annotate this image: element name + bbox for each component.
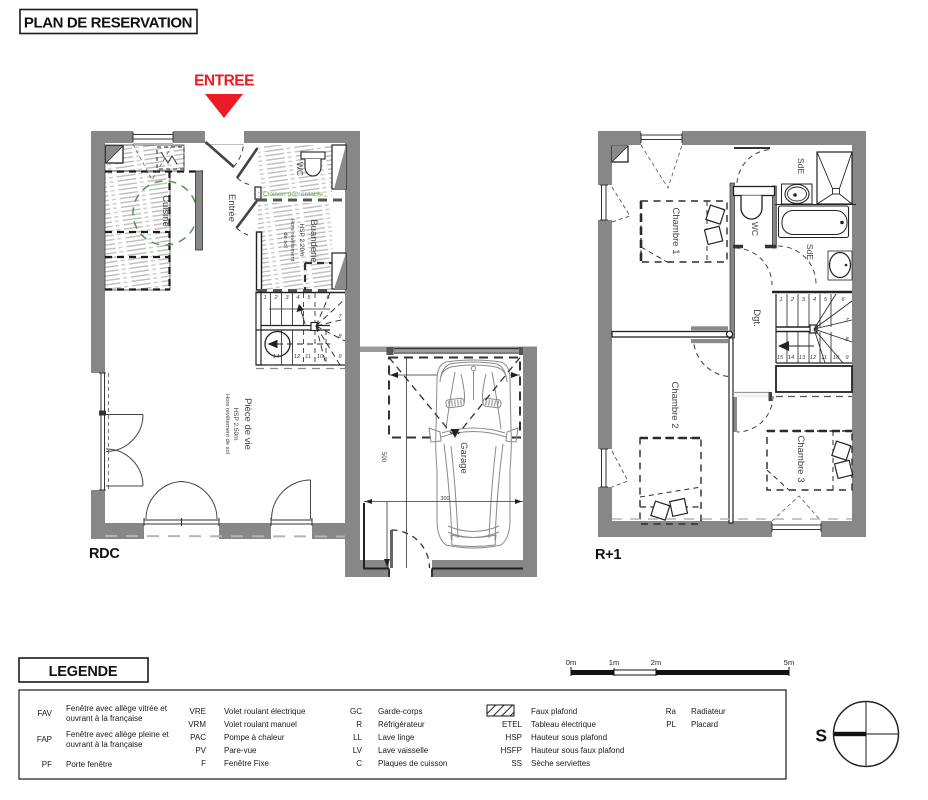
- svg-text:Porte fenêtre: Porte fenêtre: [66, 760, 113, 769]
- svg-text:Chambre 2: Chambre 2: [669, 382, 680, 429]
- svg-text:Cuisine: Cuisine: [160, 195, 171, 227]
- svg-text:ouvrant à la française: ouvrant à la française: [66, 714, 143, 723]
- svg-text:LL: LL: [353, 733, 362, 742]
- svg-text:Tableau électrique: Tableau électrique: [531, 720, 596, 729]
- svg-text:15: 15: [777, 355, 784, 361]
- svg-text:Pièce de vie: Pièce de vie: [242, 398, 253, 450]
- svg-text:Volet roulant électrique: Volet roulant électrique: [224, 707, 306, 716]
- svg-text:HSP 2.50m: HSP 2.50m: [232, 407, 239, 440]
- svg-text:Volet roulant manuel: Volet roulant manuel: [224, 720, 297, 729]
- svg-text:Chambre 1: Chambre 1: [670, 208, 681, 255]
- svg-text:14: 14: [273, 354, 279, 360]
- svg-text:12: 12: [810, 355, 817, 361]
- svg-text:Hors revêtement de sol: Hors revêtement de sol: [224, 394, 230, 454]
- svg-text:0m: 0m: [566, 658, 576, 667]
- svg-text:FAV: FAV: [37, 709, 52, 718]
- svg-text:Radiateur: Radiateur: [691, 707, 726, 716]
- svg-text:11: 11: [821, 355, 827, 361]
- svg-text:SdE: SdE: [796, 158, 806, 174]
- svg-text:SS: SS: [511, 759, 522, 768]
- svg-text:Réfrigérateur: Réfrigérateur: [378, 720, 425, 729]
- svg-text:HSP 2.20m: HSP 2.20m: [298, 223, 305, 256]
- svg-text:WC: WC: [295, 162, 305, 176]
- svg-text:F: F: [201, 759, 206, 768]
- svg-text:ENTREE: ENTREE: [194, 73, 254, 90]
- svg-text:Pompe à chaleur: Pompe à chaleur: [224, 733, 285, 742]
- svg-text:HSFP: HSFP: [501, 746, 522, 755]
- svg-text:PF: PF: [42, 760, 52, 769]
- svg-text:Sèche serviettes: Sèche serviettes: [531, 759, 590, 768]
- svg-text:VRM: VRM: [188, 720, 206, 729]
- svg-text:5m: 5m: [784, 658, 794, 667]
- svg-text:4: 4: [296, 295, 299, 301]
- svg-text:HSP: HSP: [506, 733, 522, 742]
- svg-text:Pare-vue: Pare-vue: [224, 746, 257, 755]
- svg-text:4: 4: [813, 297, 816, 303]
- svg-text:300: 300: [440, 496, 449, 502]
- svg-text:Buanderie: Buanderie: [308, 219, 319, 262]
- svg-text:Cloison démontable: Cloison démontable: [263, 191, 323, 198]
- svg-text:SdE: SdE: [805, 244, 815, 260]
- svg-text:PV: PV: [195, 746, 206, 755]
- svg-text:R+1: R+1: [595, 547, 621, 563]
- svg-text:S: S: [815, 726, 827, 746]
- svg-text:RDC: RDC: [89, 546, 120, 562]
- svg-text:ouvrant à la française: ouvrant à la française: [66, 740, 143, 749]
- svg-text:1m: 1m: [609, 658, 619, 667]
- svg-text:PLAN DE RESERVATION: PLAN DE RESERVATION: [24, 15, 192, 32]
- svg-text:GC: GC: [350, 707, 362, 716]
- svg-text:PAC: PAC: [190, 733, 206, 742]
- svg-text:500: 500: [380, 452, 386, 463]
- svg-text:LV: LV: [353, 746, 363, 755]
- svg-text:Garde-corps: Garde-corps: [378, 707, 422, 716]
- svg-text:1: 1: [263, 295, 266, 301]
- svg-text:12: 12: [294, 354, 301, 360]
- svg-text:Garage: Garage: [458, 442, 469, 474]
- svg-text:Fenêtre avec allège vitrée et: Fenêtre avec allège vitrée et: [66, 704, 168, 713]
- svg-text:Plaques de cuisson: Plaques de cuisson: [378, 759, 447, 768]
- svg-text:10: 10: [317, 354, 324, 360]
- svg-text:11: 11: [305, 354, 311, 360]
- svg-text:Hauteur sous plafond: Hauteur sous plafond: [531, 733, 607, 742]
- svg-text:Lave vaisselle: Lave vaisselle: [378, 746, 429, 755]
- svg-text:ETEL: ETEL: [502, 720, 523, 729]
- svg-text:Ra: Ra: [666, 707, 677, 716]
- svg-text:de sol: de sol: [282, 232, 288, 247]
- svg-text:1: 1: [779, 297, 782, 303]
- svg-text:Hors revêtement: Hors revêtement: [289, 219, 295, 262]
- svg-text:WC: WC: [750, 222, 760, 236]
- svg-text:14: 14: [788, 355, 794, 361]
- svg-text:LEGENDE: LEGENDE: [49, 664, 118, 680]
- svg-text:Chambre 3: Chambre 3: [795, 436, 806, 483]
- svg-text:10: 10: [833, 355, 840, 361]
- svg-text:C: C: [356, 759, 362, 768]
- svg-text:FAP: FAP: [37, 735, 52, 744]
- svg-text:R: R: [356, 720, 362, 729]
- svg-text:Fenêtre avec allège pleine et: Fenêtre avec allège pleine et: [66, 730, 170, 739]
- svg-text:Faux plafond: Faux plafond: [531, 707, 577, 716]
- svg-text:VRE: VRE: [190, 707, 206, 716]
- svg-text:Lave linge: Lave linge: [378, 733, 415, 742]
- svg-text:13: 13: [799, 355, 806, 361]
- svg-text:Fenêtre Fixe: Fenêtre Fixe: [224, 759, 269, 768]
- svg-text:Dgt.: Dgt.: [751, 309, 762, 326]
- svg-text:Hauteur sous faux plafond: Hauteur sous faux plafond: [531, 746, 624, 755]
- svg-text:PL: PL: [666, 720, 676, 729]
- svg-text:Placard: Placard: [691, 720, 718, 729]
- svg-text:2m: 2m: [651, 658, 661, 667]
- svg-text:Entrée: Entrée: [226, 194, 237, 222]
